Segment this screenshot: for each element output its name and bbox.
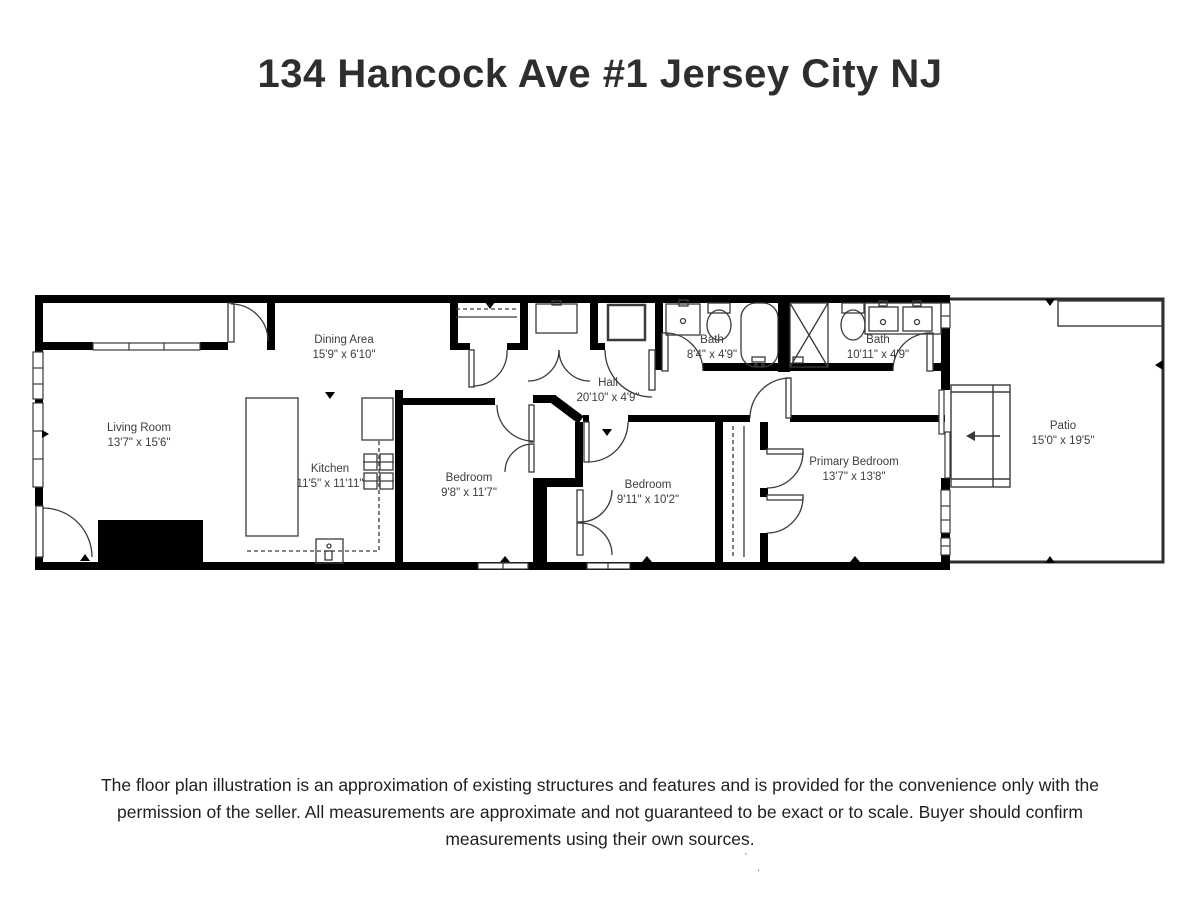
room-label-bath-2: Bath 10'11" x 4'9"	[847, 333, 909, 363]
dimension-ticks	[42, 299, 1163, 563]
room-label-dining: Dining Area 15'9" x 6'10"	[312, 333, 375, 363]
window	[941, 538, 950, 555]
floor-plan	[0, 0, 1200, 900]
room-label-bath-1: Bath 8'4" x 4'9"	[687, 333, 737, 363]
window	[941, 490, 950, 533]
bedroom-door	[750, 378, 791, 418]
door	[228, 303, 268, 342]
window	[93, 343, 200, 350]
walls	[35, 295, 950, 570]
room-label-patio: Patio 15'0" x 19'5"	[1031, 419, 1094, 449]
shower-icon	[790, 303, 828, 367]
window	[33, 403, 43, 487]
artifact-dot: .	[757, 862, 760, 874]
entry-door	[36, 506, 92, 557]
room-label-primary-bedroom: Primary Bedroom 13'7" x 13'8"	[809, 455, 898, 485]
sliding-door	[939, 390, 950, 478]
dryer-icon	[608, 305, 645, 340]
window	[941, 303, 950, 328]
window	[587, 563, 630, 569]
disclaimer-text: The floor plan illustration is an approx…	[100, 772, 1100, 853]
bathtub-icon	[741, 303, 778, 367]
washer-icon	[536, 301, 577, 333]
closet-door	[505, 444, 534, 472]
cabinet-dashed-line	[247, 441, 379, 551]
floorplan-page: 134 Hancock Ave #1 Jersey City NJ	[0, 0, 1200, 900]
artifact-dot: ·	[744, 848, 748, 860]
double-closet-door	[577, 490, 612, 555]
closet-door	[767, 495, 803, 533]
closet-shelf	[456, 309, 517, 317]
kitchen-counter	[362, 398, 393, 440]
room-label-living: Living Room 13'7" x 15'6"	[107, 421, 171, 451]
kitchen-island	[246, 398, 298, 536]
room-label-bedroom-2: Bedroom 9'11" x 10'2"	[617, 478, 679, 508]
planter	[1058, 301, 1162, 326]
stair-block	[98, 520, 203, 568]
window	[33, 352, 43, 399]
closet-door	[469, 350, 507, 387]
window	[478, 563, 528, 569]
room-label-kitchen: Kitchen 11'5" x 11'11"	[297, 462, 364, 492]
room-label-bedroom-1: Bedroom 9'8" x 11'7"	[441, 471, 497, 501]
bedroom-door	[497, 405, 534, 442]
double-vanity-icon	[865, 301, 941, 334]
room-label-hall: Hall 20'10" x 4'9"	[576, 376, 639, 406]
bedroom-door	[584, 422, 628, 462]
closet-door	[767, 449, 803, 488]
closet-rod	[733, 426, 744, 559]
patio-stairs-icon	[951, 385, 1010, 487]
sink-icon	[666, 300, 700, 335]
